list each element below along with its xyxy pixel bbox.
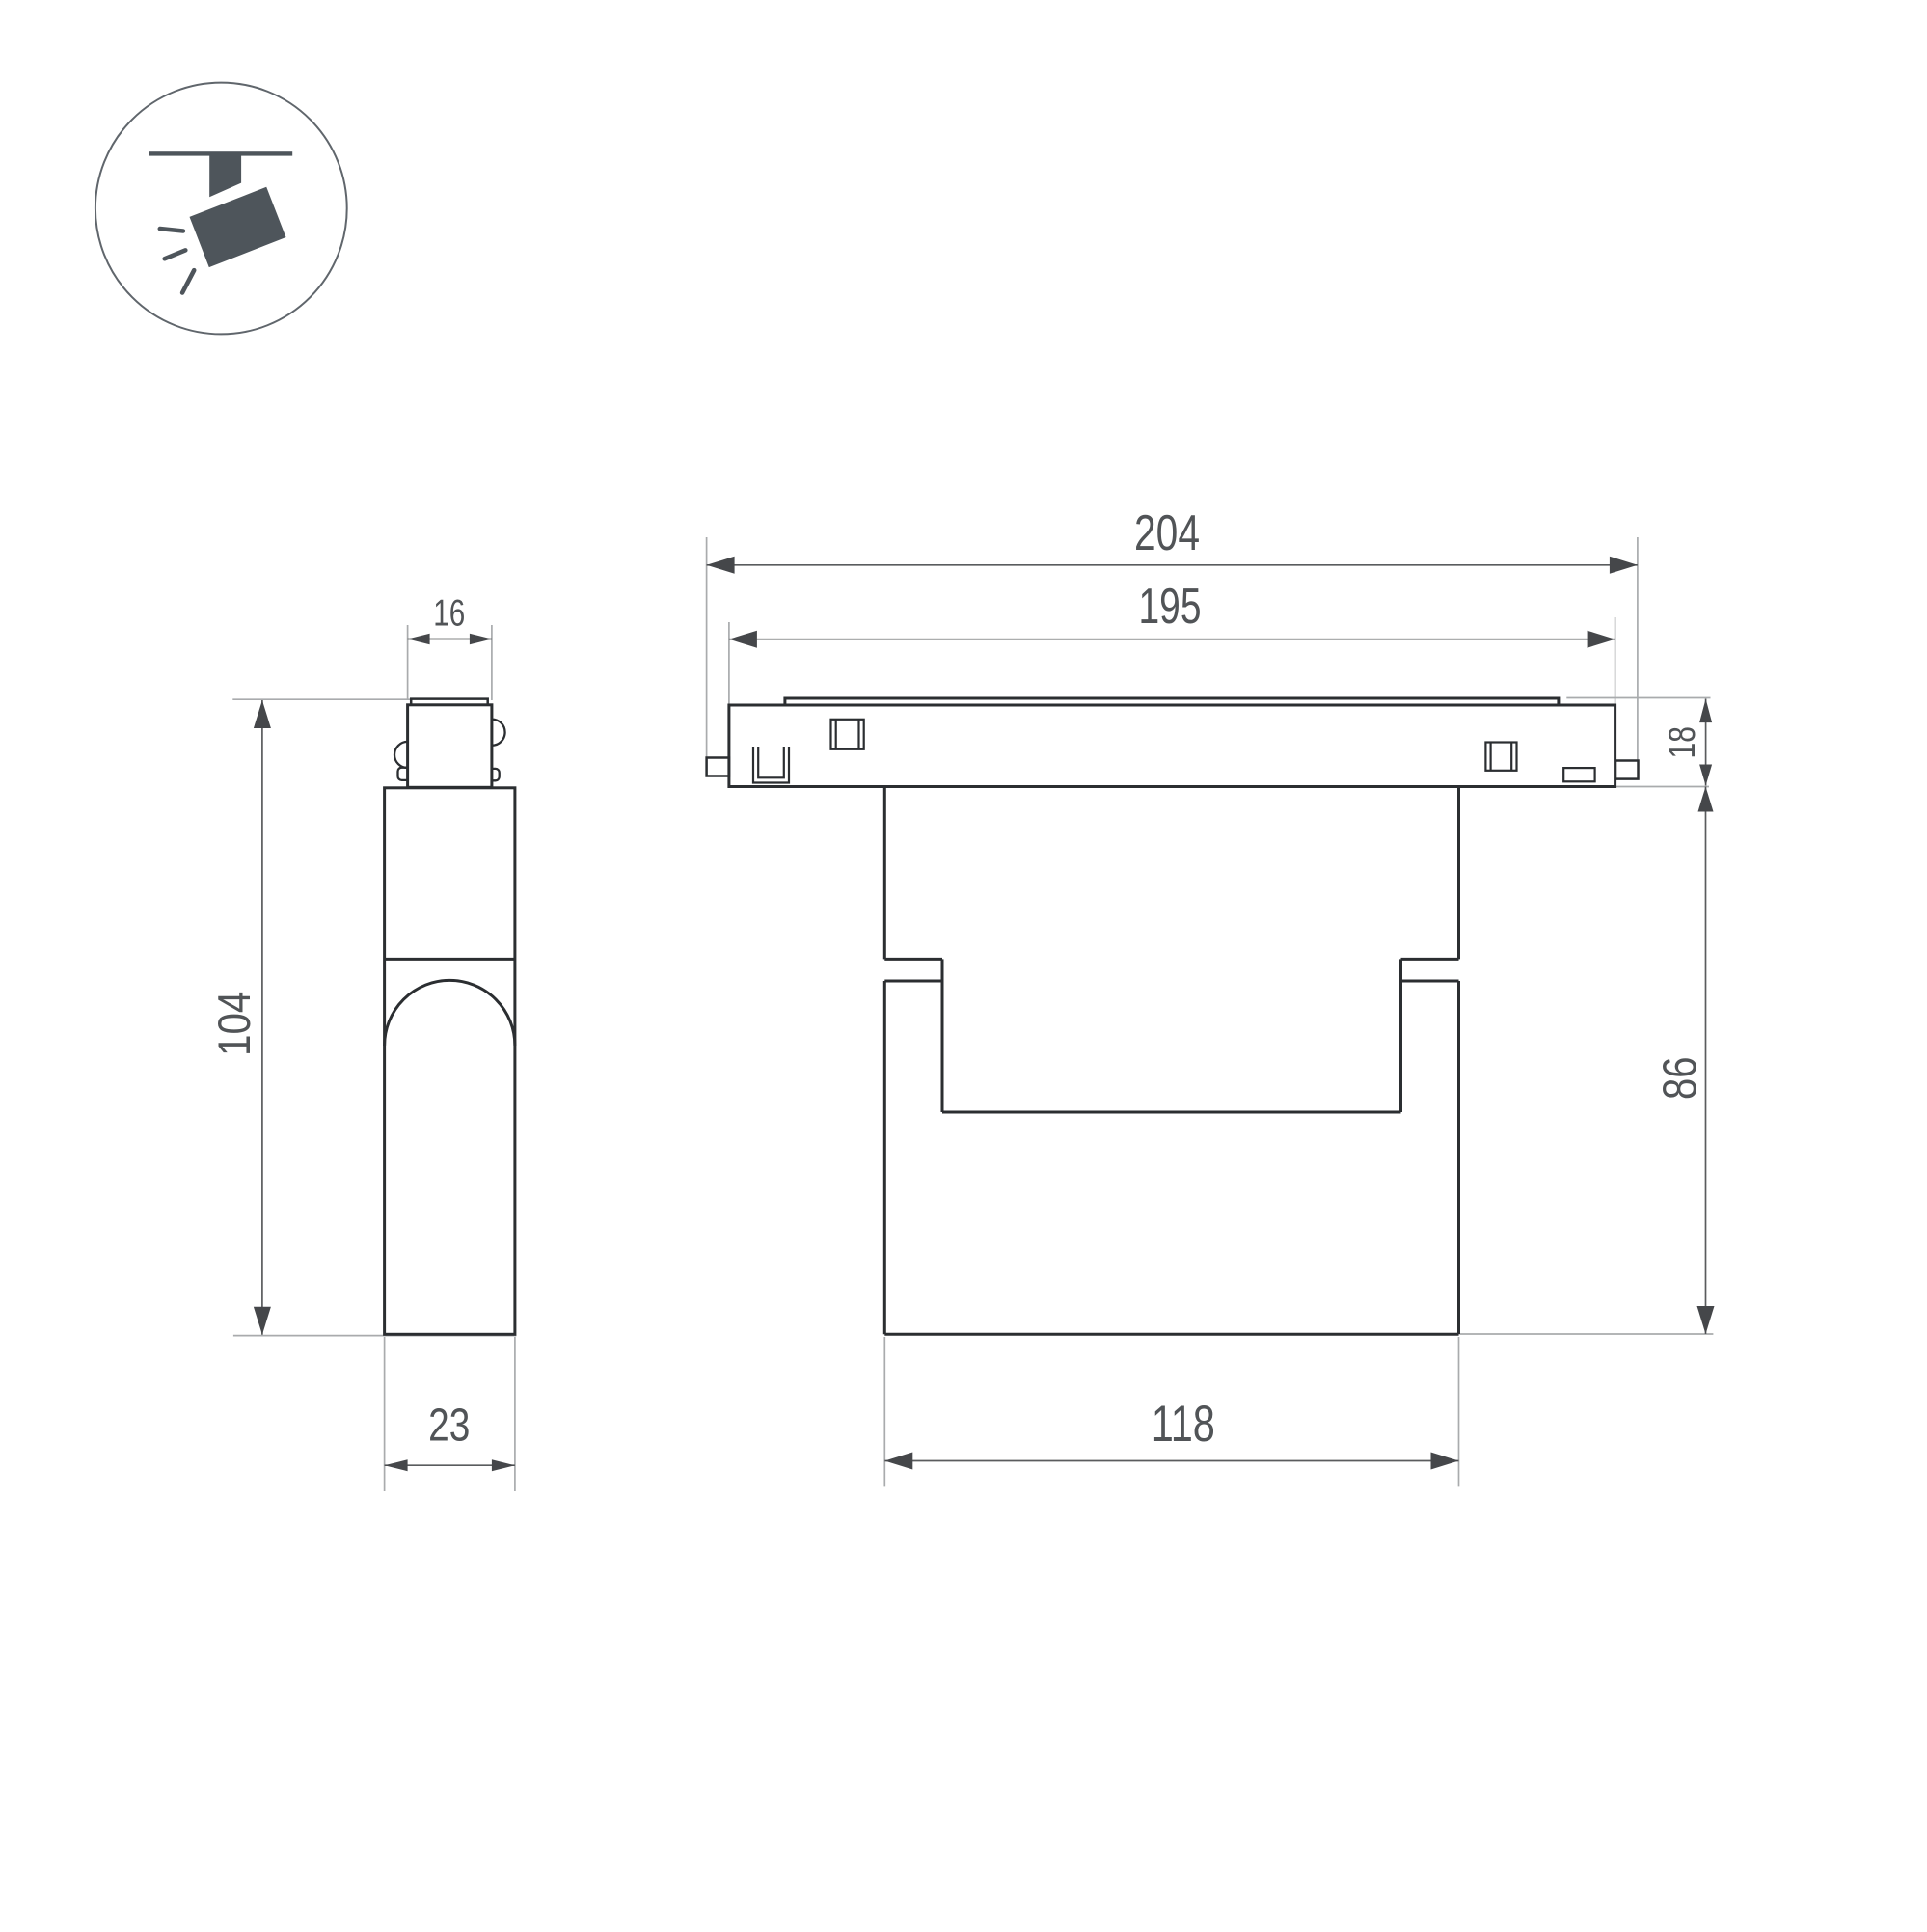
svg-text:86: 86 bbox=[1655, 1056, 1707, 1100]
svg-text:104: 104 bbox=[209, 992, 260, 1056]
svg-text:18: 18 bbox=[1662, 726, 1703, 758]
svg-text:195: 195 bbox=[1139, 579, 1202, 635]
svg-text:204: 204 bbox=[1134, 505, 1200, 561]
svg-text:118: 118 bbox=[1152, 1396, 1215, 1453]
svg-text:16: 16 bbox=[433, 593, 465, 635]
svg-text:23: 23 bbox=[428, 1399, 470, 1451]
